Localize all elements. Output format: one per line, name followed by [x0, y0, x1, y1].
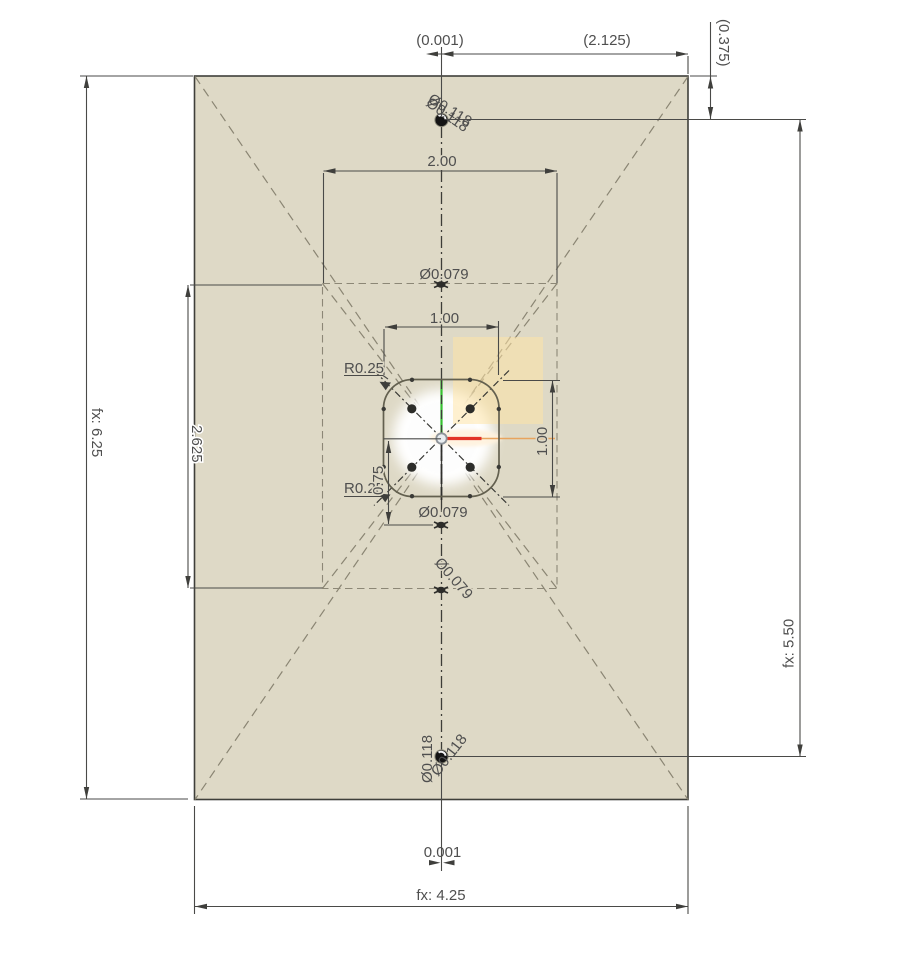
svg-text:fx: 4.25: fx: 4.25: [416, 887, 465, 904]
svg-text:2.00: 2.00: [427, 153, 456, 170]
svg-text:fx: 6.25: fx: 6.25: [88, 408, 105, 457]
svg-text:(0.001): (0.001): [416, 32, 464, 49]
svg-text:R0.25: R0.25: [344, 360, 384, 377]
svg-text:fx: 5.50: fx: 5.50: [781, 619, 798, 668]
svg-text:(2.125): (2.125): [583, 32, 631, 49]
svg-text:0.001: 0.001: [424, 844, 462, 861]
svg-text:1.00: 1.00: [430, 310, 459, 327]
svg-text:Ø0.079: Ø0.079: [419, 266, 468, 283]
svg-text:(0.375): (0.375): [715, 19, 732, 67]
svg-text:Ø0.118: Ø0.118: [419, 735, 436, 783]
svg-text:2.625: 2.625: [188, 425, 205, 463]
svg-text:0.75: 0.75: [370, 466, 387, 495]
svg-text:Ø0.079: Ø0.079: [418, 504, 467, 521]
svg-text:1.00: 1.00: [534, 427, 551, 456]
